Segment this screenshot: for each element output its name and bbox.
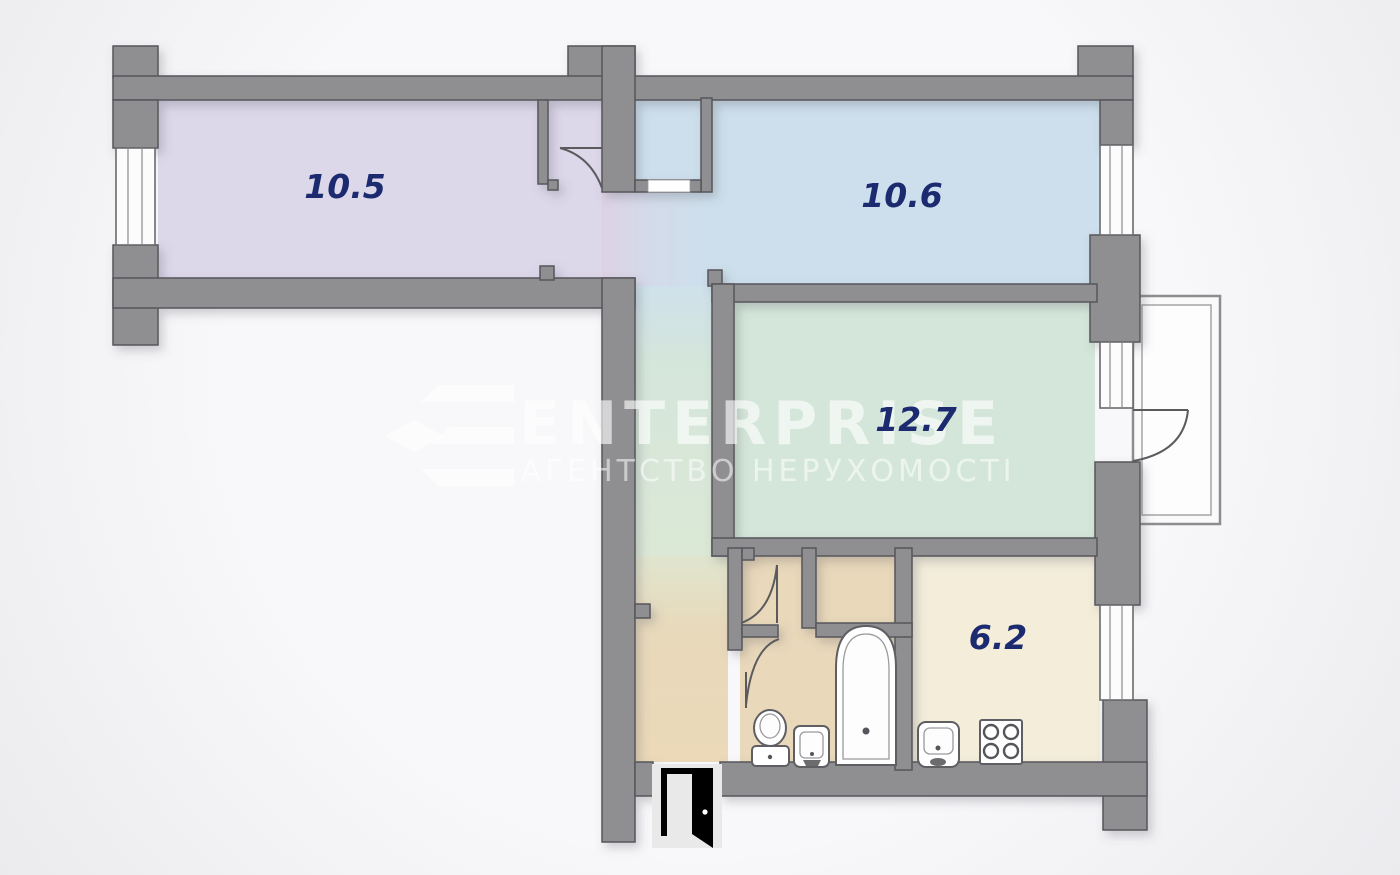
entry-door <box>652 764 722 848</box>
hall-floor <box>635 556 728 762</box>
toilet-icon <box>752 710 789 766</box>
wall-right-upper <box>1100 100 1133 145</box>
room2-closet-floor <box>635 98 701 182</box>
wall-jamb-closet <box>548 180 558 190</box>
wall-left-upper <box>113 100 158 148</box>
floorplan-page: ENTERPRISE АГЕНТСТВО НЕРУХОМОСТІ 10.5 10… <box>0 0 1400 875</box>
wall-right-pier2 <box>1095 462 1140 605</box>
window-kitchen-right <box>1100 605 1133 700</box>
wall-room1-closet <box>538 100 548 184</box>
kitchen-sink-icon <box>918 722 959 767</box>
entry-door-leaf-icon <box>692 768 713 848</box>
wall-hall-stub <box>635 604 650 618</box>
watermark-subtitle: АГЕНТСТВО НЕРУХОМОСТІ <box>520 454 1015 489</box>
bathroom-sink-icon <box>794 726 829 767</box>
wall-wc-arm <box>742 625 778 637</box>
wall-vestibule-west <box>728 548 742 650</box>
wall-vestibule-east <box>802 548 816 628</box>
wall-room2-closet-right <box>701 98 712 192</box>
room3-area-label: 12.7 <box>875 400 956 439</box>
wall-jamb-vestibule <box>742 548 754 560</box>
window-room2-right <box>1100 145 1133 235</box>
stove-icon <box>980 720 1022 764</box>
wall-room1-bottom <box>113 278 635 308</box>
wall-center-upper <box>602 46 635 192</box>
bathtub-icon <box>836 626 896 765</box>
wall-pier-top-left <box>113 46 158 78</box>
room1-area-label: 10.5 <box>304 167 385 206</box>
wall-hall-left <box>602 278 635 842</box>
closet-opening <box>648 180 690 192</box>
entry-door-handle-icon <box>702 809 707 814</box>
wall-pier-top-right <box>1078 46 1133 78</box>
window-room1-left <box>116 148 155 245</box>
wall-room2-room3-divider <box>712 284 1097 302</box>
kitchen-area-label: 6.2 <box>969 618 1027 657</box>
wall-jamb-room1 <box>540 266 554 280</box>
wall-kitchen-west <box>895 548 912 770</box>
floorplan-canvas: ENTERPRISE АГЕНТСТВО НЕРУХОМОСТІ 10.5 10… <box>0 0 1400 875</box>
room2-area-label: 10.6 <box>861 176 942 215</box>
corridor-opening-floor <box>602 190 712 286</box>
wall-bottom-left-sliver <box>635 762 653 796</box>
window-room3-right <box>1100 342 1133 408</box>
enterprise-logo-icon <box>384 385 514 486</box>
